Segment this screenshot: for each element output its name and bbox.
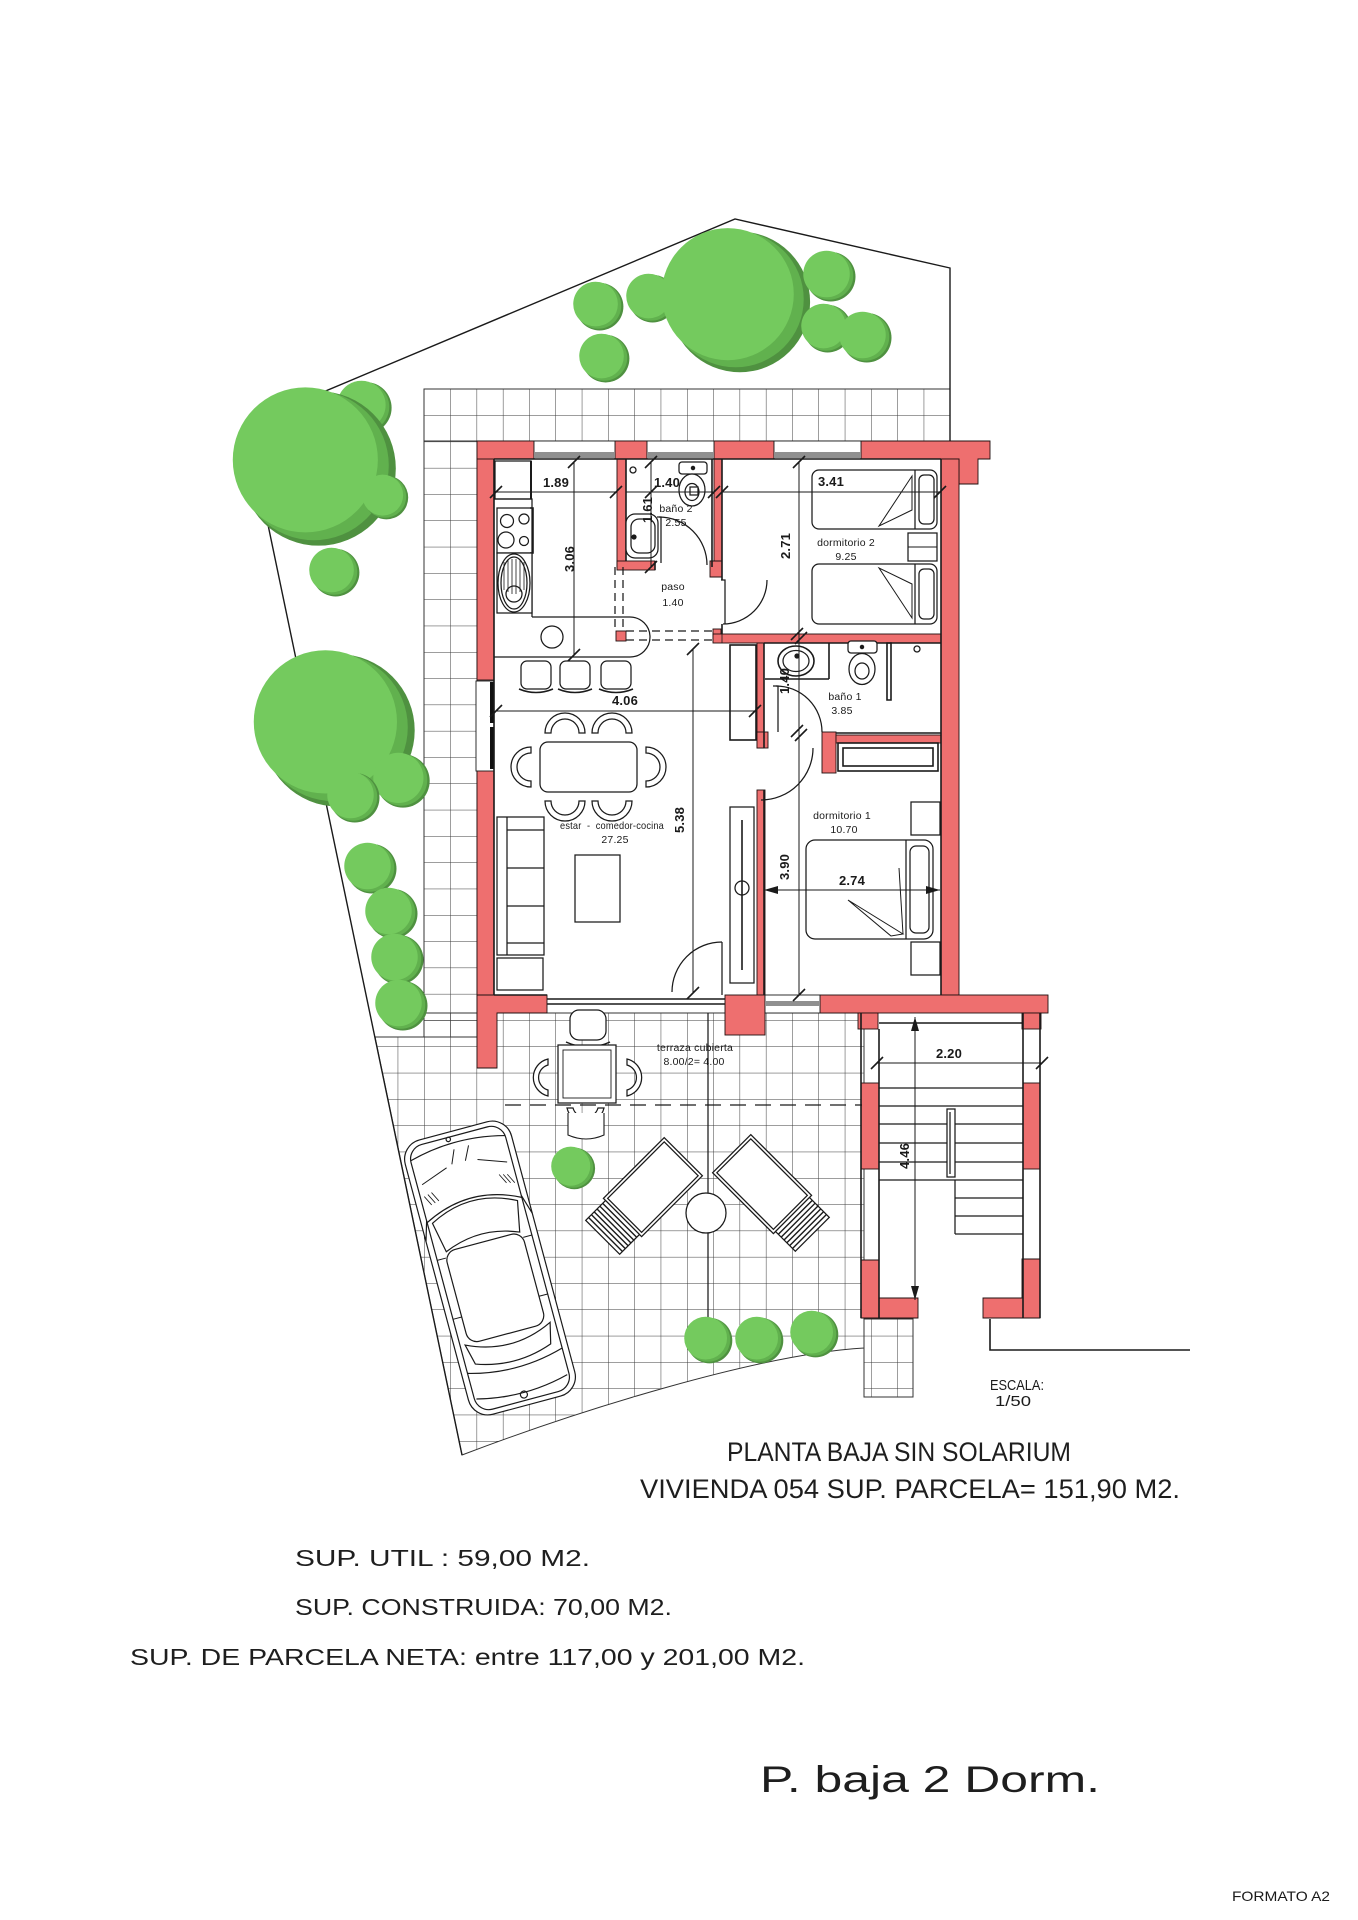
svg-text:dormitorio 1: dormitorio 1: [813, 810, 871, 822]
svg-text:27.25: 27.25: [601, 834, 628, 846]
svg-text:1.40: 1.40: [662, 597, 683, 609]
svg-text:paso: paso: [661, 581, 685, 593]
svg-text:8.00/2= 4.00: 8.00/2= 4.00: [663, 1056, 724, 1068]
svg-text:SUP. UTIL : 59,00 M2.: SUP. UTIL : 59,00 M2.: [295, 1545, 590, 1571]
svg-text:baño 2: baño 2: [659, 503, 692, 515]
svg-text:terraza cubierta: terraza cubierta: [657, 1042, 733, 1054]
svg-text:dormitorio 2: dormitorio 2: [817, 537, 875, 549]
svg-text:1.40: 1.40: [777, 668, 792, 694]
svg-text:1.40: 1.40: [654, 475, 680, 490]
svg-text:3.41: 3.41: [818, 474, 844, 489]
svg-text:VIVIENDA 054 SUP. PARCELA= 151: VIVIENDA 054 SUP. PARCELA= 151,90 M2.: [640, 1474, 1180, 1504]
svg-text:2.55: 2.55: [665, 517, 686, 529]
svg-text:PLANTA BAJA SIN SOLARIUM: PLANTA BAJA SIN SOLARIUM: [727, 1437, 1071, 1467]
svg-text:SUP. CONSTRUIDA: 70,00 M2.: SUP. CONSTRUIDA: 70,00 M2.: [295, 1594, 672, 1620]
svg-text:baño 1: baño 1: [828, 691, 861, 703]
svg-text:1.89: 1.89: [543, 475, 569, 490]
svg-text:1.61: 1.61: [640, 497, 655, 523]
svg-text:10.70: 10.70: [830, 824, 857, 836]
svg-text:2.74: 2.74: [839, 873, 866, 888]
svg-text:2.20: 2.20: [936, 1046, 962, 1061]
svg-text:2.71: 2.71: [778, 533, 793, 559]
svg-text:FORMATO A2: FORMATO A2: [1232, 1888, 1330, 1904]
svg-text:5.38: 5.38: [672, 807, 687, 833]
svg-text:P. baja 2 Dorm.: P. baja 2 Dorm.: [760, 1759, 1100, 1800]
svg-text:4.46: 4.46: [897, 1143, 912, 1169]
svg-text:9.25: 9.25: [835, 551, 856, 563]
svg-text:3.85: 3.85: [831, 705, 852, 717]
svg-text:3.06: 3.06: [562, 546, 577, 572]
svg-text:ESCALA:: ESCALA:: [990, 1377, 1044, 1394]
svg-text:SUP. DE PARCELA NETA: entre 11: SUP. DE PARCELA NETA: entre 117,00 y 201…: [130, 1644, 805, 1670]
svg-text:estar - comedor-cocina: estar - comedor-cocina: [560, 820, 664, 832]
svg-text:3.90: 3.90: [777, 854, 792, 880]
svg-text:4.06: 4.06: [612, 693, 638, 708]
svg-text:1/50: 1/50: [995, 1393, 1031, 1410]
